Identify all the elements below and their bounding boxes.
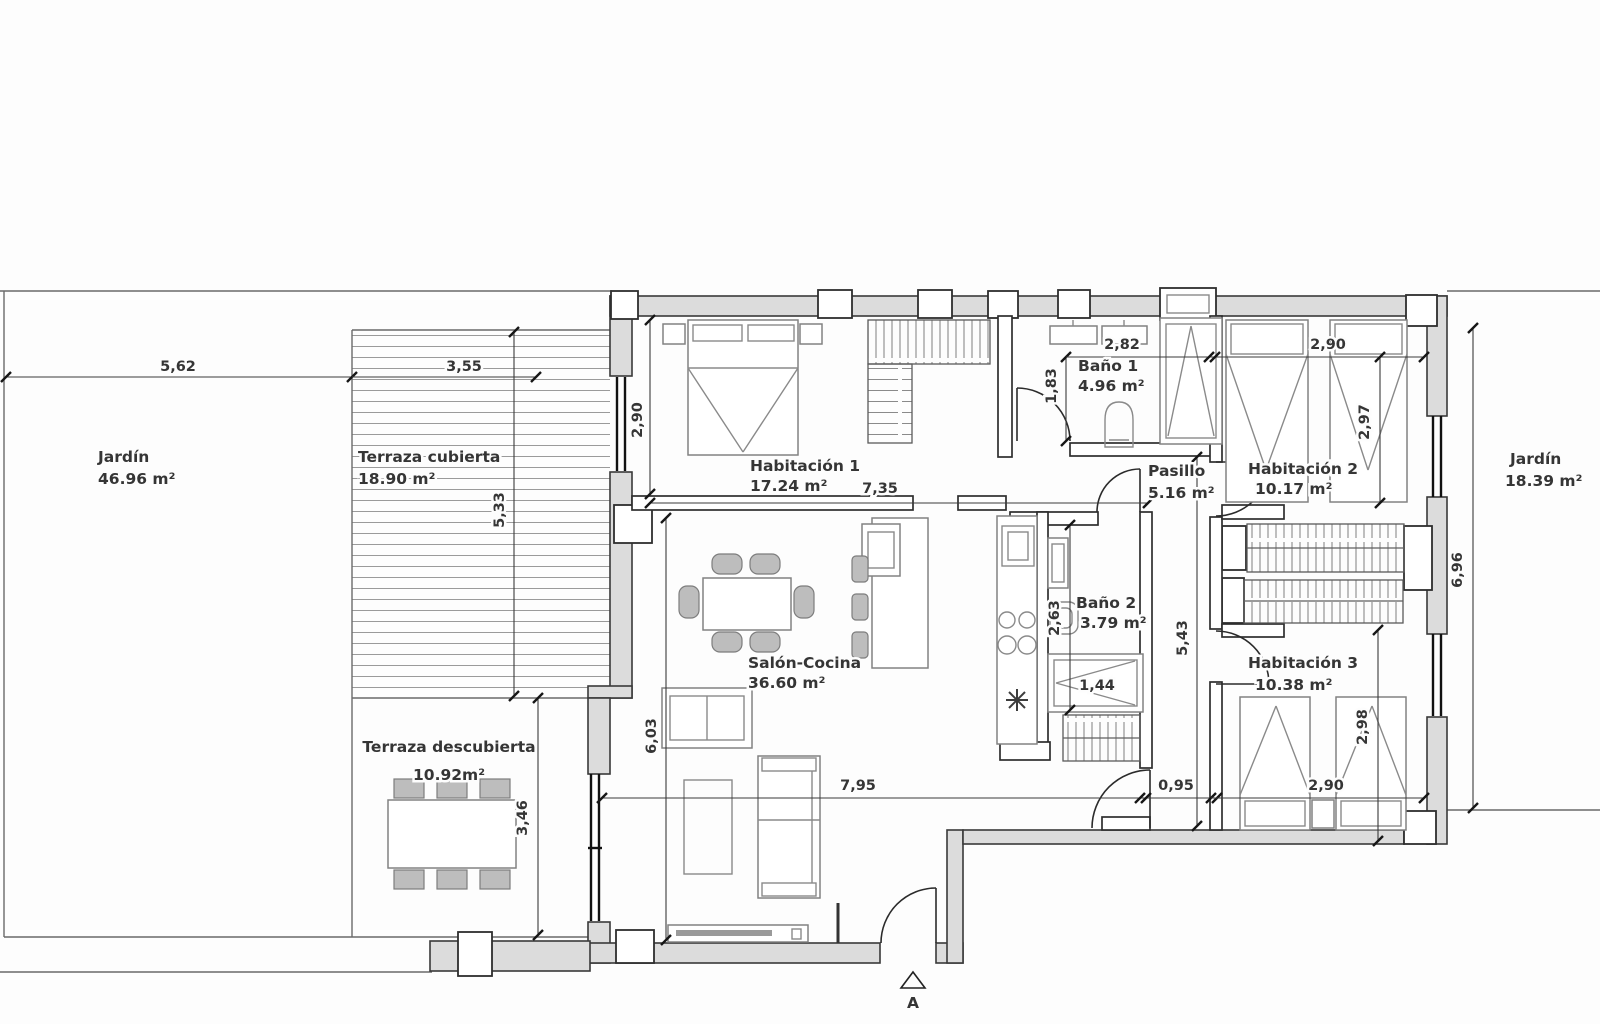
svg-text:5.16 m²: 5.16 m² [1148, 484, 1215, 502]
washbasin-bano2 [1048, 538, 1068, 588]
double-bed [688, 320, 798, 455]
floor-plan-drawing: 5,62 3,55 5,33 2,90 7,35 1,83 2,82 [0, 0, 1600, 1024]
dim-salon-width: 7,95 [597, 778, 1142, 803]
shower-bano1 [1160, 318, 1222, 444]
svg-text:Jardín: Jardín [1509, 450, 1561, 468]
svg-text:0,95: 0,95 [1158, 778, 1194, 794]
sofa-small [662, 688, 752, 748]
svg-text:10.92m²: 10.92m² [413, 766, 485, 784]
dim-shower-width: 1,44 [1079, 678, 1115, 694]
door-bano2 [1097, 469, 1140, 512]
svg-text:10.17 m²: 10.17 m² [1255, 480, 1332, 498]
svg-text:2,90: 2,90 [1308, 778, 1344, 794]
hall-closet [1063, 715, 1140, 761]
svg-text:Salón-Cocina: Salón-Cocina [748, 654, 861, 672]
dim-bano1-height: 1,83 [1044, 352, 1071, 446]
svg-text:3,55: 3,55 [446, 359, 482, 375]
label-habitacion-3: Habitación 3 10.38 m² [1248, 654, 1358, 694]
single-bed [1240, 697, 1310, 830]
wardrobe-shelves [868, 364, 912, 443]
label-jardin-right: Jardín 18.39 m² [1505, 450, 1582, 490]
dishwasher-symbol [1006, 689, 1028, 711]
single-bed [1336, 697, 1406, 830]
closet-hab2 [1247, 524, 1404, 572]
svg-text:Habitación 1: Habitación 1 [750, 457, 860, 475]
svg-text:10.38 m²: 10.38 m² [1255, 676, 1332, 694]
svg-text:3.79 m²: 3.79 m² [1080, 614, 1147, 632]
svg-text:18.39 m²: 18.39 m² [1505, 472, 1582, 490]
floor-plan: 5,62 3,55 5,33 2,90 7,35 1,83 2,82 [0, 0, 1600, 1024]
dim-pasillo-height: 5,43 [1175, 452, 1202, 831]
svg-text:A: A [907, 994, 919, 1012]
window-hab3-east [1433, 634, 1441, 716]
label-bano-2: Baño 2 3.79 m² [1076, 594, 1147, 632]
svg-text:Habitación 3: Habitación 3 [1248, 654, 1358, 672]
nightstand [1312, 800, 1334, 828]
svg-text:Terraza descubierta: Terraza descubierta [362, 738, 535, 756]
dim-jardin-right-height: 6,96 [1450, 323, 1478, 813]
label-terraza-descubierta: Terraza descubierta 10.92m² [362, 738, 535, 784]
bar-stool [852, 556, 868, 658]
svg-text:Terraza cubierta: Terraza cubierta [358, 448, 500, 466]
toilet-bano1 [1105, 402, 1133, 447]
dim-pasillo-width: 0,95 [1135, 778, 1222, 803]
svg-text:2,97: 2,97 [1357, 404, 1373, 440]
window-hab1-west [617, 377, 625, 471]
svg-text:Baño 2: Baño 2 [1076, 594, 1136, 612]
sofa-large [758, 756, 820, 898]
closet-hab3 [1244, 580, 1403, 623]
svg-text:46.96 m²: 46.96 m² [98, 470, 175, 488]
label-habitacion-1: Habitación 1 17.24 m² [750, 457, 860, 495]
svg-text:Jardín: Jardín [97, 448, 149, 466]
wardrobe-hanging [868, 320, 990, 364]
svg-text:2,90: 2,90 [630, 402, 646, 438]
svg-text:Pasillo: Pasillo [1148, 462, 1205, 480]
svg-text:6,03: 6,03 [644, 718, 660, 754]
rug [684, 780, 732, 874]
svg-text:2,90: 2,90 [1310, 337, 1346, 353]
svg-text:2,82: 2,82 [1104, 337, 1140, 353]
svg-text:18.90 m²: 18.90 m² [358, 470, 435, 488]
svg-text:3,46: 3,46 [515, 800, 531, 836]
svg-text:7,35: 7,35 [862, 481, 898, 497]
label-jardin-left: Jardín 46.96 m² [97, 448, 175, 488]
svg-text:Habitación 2: Habitación 2 [1248, 460, 1358, 478]
svg-text:5,33: 5,33 [492, 492, 508, 528]
sliding-door-salon-west [588, 774, 602, 921]
svg-text:5,62: 5,62 [160, 359, 196, 375]
svg-text:4.96 m²: 4.96 m² [1078, 377, 1145, 395]
section-marker: A [901, 972, 925, 1012]
dim-terraza-desc-height: 3,46 [515, 693, 543, 940]
dining-table [703, 578, 791, 630]
svg-text:Baño 1: Baño 1 [1078, 357, 1138, 375]
dim-hab1-height: 2,90 [630, 315, 655, 499]
svg-text:7,95: 7,95 [840, 778, 876, 794]
entrance-door [881, 888, 936, 943]
svg-text:36.60 m²: 36.60 m² [748, 674, 825, 692]
svg-text:6,96: 6,96 [1450, 552, 1466, 588]
tv-unit [668, 925, 808, 942]
terrace-table [388, 800, 516, 868]
svg-text:2,98: 2,98 [1355, 709, 1371, 745]
label-pasillo: Pasillo 5.16 m² [1148, 462, 1215, 502]
svg-text:2,63: 2,63 [1047, 600, 1063, 636]
svg-text:5,43: 5,43 [1175, 620, 1191, 656]
window-hab2-east [1433, 416, 1441, 497]
label-salon-cocina: Salón-Cocina 36.60 m² [748, 654, 861, 692]
svg-text:17.24 m²: 17.24 m² [750, 477, 827, 495]
svg-text:1,44: 1,44 [1079, 678, 1115, 694]
label-bano-1: Baño 1 4.96 m² [1078, 357, 1145, 395]
svg-text:1,83: 1,83 [1044, 368, 1060, 404]
dim-jardin-width: 5,62 [1, 359, 357, 382]
